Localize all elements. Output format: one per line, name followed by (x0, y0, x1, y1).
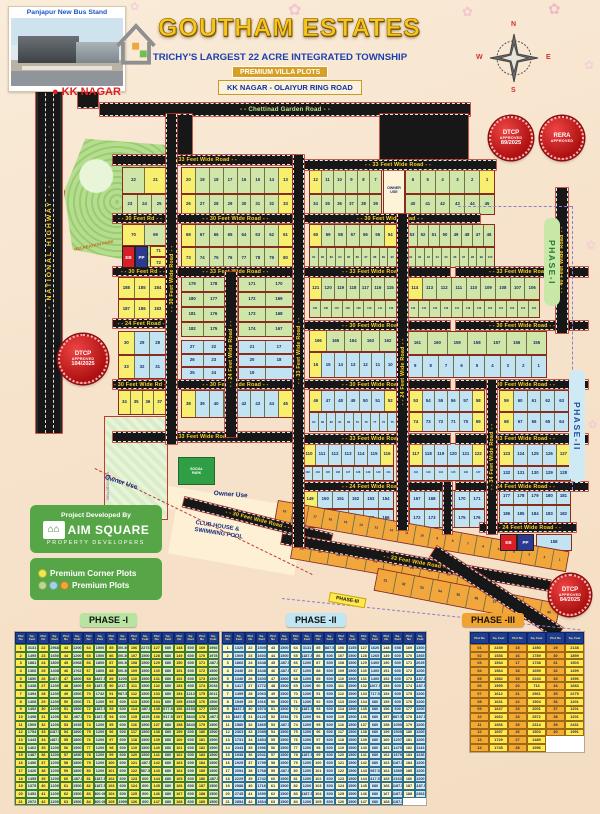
plot-no-cell: 102 (313, 775, 324, 783)
plot-no-cell: 48 (267, 682, 278, 690)
sqft-cell: 1500 (140, 736, 151, 744)
plot-cell: 32 (265, 195, 279, 214)
sqft-cell: 1143 (415, 744, 426, 752)
road: 30 Feet Wide Road (300, 321, 450, 330)
sqft-cell: 1800 (72, 682, 83, 690)
soc-park: SOCIAL PARK (178, 457, 215, 485)
sqft-cell: 600 (185, 736, 196, 744)
plot-no-cell: 18 (222, 775, 233, 783)
sqft-cell: 600 (117, 752, 128, 760)
road: 30 Feet Rd (113, 267, 173, 276)
sqft-cell: 4365 (185, 698, 196, 706)
plot-strip: 181176 (181, 307, 225, 322)
plot-no-cell: 09 (470, 706, 489, 714)
sqft-cell: 1850 (26, 675, 37, 683)
sqft-cell: 1300 (415, 644, 426, 652)
road-label: 30 Feet Rd (121, 269, 165, 275)
sqft-cell: 1200 (94, 736, 105, 744)
seal-text: 84/2025 (560, 597, 580, 603)
plot-cell: 118 (423, 444, 436, 465)
plot-cell: 5 (421, 168, 436, 193)
sqft-cell: 2243 (527, 675, 546, 683)
plot-no-cell: 75 (83, 729, 94, 737)
plot-no-cell: 72 (290, 706, 301, 714)
sqft-cell: 1500 (347, 675, 358, 683)
sqft-cell: 1200 (49, 790, 60, 798)
plot-cell: 30 (119, 332, 135, 354)
plot-cell: 182 (557, 506, 570, 522)
plot-cell: 49 (451, 225, 462, 246)
plot-cell: 45 (279, 391, 292, 417)
sqft-cell: 600 (185, 798, 196, 806)
plot-no-cell: 174 (196, 682, 207, 690)
table-header-sqft: Sq. Feet (94, 632, 105, 644)
plot-cell: 115 (385, 278, 396, 299)
plot-strip: 166165164163162 (309, 330, 397, 352)
plot-no-cell: 46 (60, 667, 71, 675)
sqft-cell: 2025 (415, 659, 426, 667)
sqft-cell: 1648 (256, 667, 267, 675)
plot-no-cell: 183 (403, 752, 414, 760)
plot-cell: 176 (204, 308, 225, 321)
plot-no-cell: 46 (267, 667, 278, 675)
plot-strip: 2018 (238, 354, 293, 367)
plot-cell: 169 (266, 293, 292, 306)
sqft-cell: 1187.5 (415, 675, 426, 683)
plot-cell: 33 (119, 356, 135, 378)
plot-strip: 7374757677787980 (181, 247, 293, 269)
plot-no-cell: 74 (290, 721, 301, 729)
plot-no-cell: 159 (174, 729, 185, 737)
plot-no-cell: 31 (245, 713, 256, 721)
sqft-cell: 1742 (256, 775, 267, 783)
plot-cell: 84 (336, 248, 345, 267)
sqft-cell: 1408 (26, 698, 37, 706)
plot-cell: 34 (119, 391, 131, 414)
plot-no-cell: 26 (508, 729, 527, 737)
sqft-cell: 600 (324, 721, 335, 729)
plot-no-cell: 31 (546, 659, 565, 667)
sqft-cell: 680 (162, 675, 173, 683)
developer-tagline: PROPERTY DEVELOPERS (47, 540, 145, 546)
plot-no-cell: 161 (174, 744, 185, 752)
sqft-cell: 1500 (347, 667, 358, 675)
plot-no-cell: 37 (38, 759, 49, 767)
plot-no-cell: 134 (358, 698, 369, 706)
plot-no-cell: 19 (15, 782, 26, 790)
plot-cell: 17 (266, 341, 292, 353)
plot-cell: 168 (425, 491, 440, 508)
plot-no-cell: 167 (174, 790, 185, 798)
sqft-cell: 1500 (140, 652, 151, 660)
plot-strip: 123124125126127 (499, 443, 571, 466)
sqft-cell: 1487.5 (208, 713, 219, 721)
plot-no-cell: 102 (106, 775, 117, 783)
sqft-cell: 1200 (49, 690, 60, 698)
plot-cell: 32 (135, 356, 151, 378)
plot-strip: 6867666564636261 (181, 224, 293, 247)
sqft-cell: 600 (392, 675, 403, 683)
plot-strip: 2524 (181, 367, 225, 380)
plot-no-cell: 64 (83, 644, 94, 652)
sqft-cell: 1200 (301, 682, 312, 690)
plot-no-cell: 153 (381, 682, 392, 690)
table-header-sqft: Sq. Feet (527, 632, 546, 644)
plot-no-cell: 4 (15, 667, 26, 675)
plot-strip: 187186183 (118, 299, 166, 320)
sqft-cell: 917.5 (162, 713, 173, 721)
plot-no-cell: 187 (403, 782, 414, 790)
sqft-cell: 1500 (279, 690, 290, 698)
sqft-cell: 600 (117, 721, 128, 729)
plot-no-cell: 124 (335, 782, 346, 790)
plot-no-cell: 58 (60, 759, 71, 767)
sqft-cell: 2089 (256, 729, 267, 737)
plot-cell: 171 (239, 278, 266, 291)
plot-no-cell: 142 (358, 759, 369, 767)
plot-no-cell: 63 (60, 798, 71, 806)
plot-cell: 188 (119, 278, 135, 298)
plot-no-cell: 12 (15, 729, 26, 737)
plot-cell: 111 (452, 278, 467, 299)
sqft-cell: 1200 (301, 767, 312, 775)
sqft-cell: 2229 (233, 775, 244, 783)
plot-cell: 35 (322, 195, 334, 214)
sqft-cell: 600 (117, 736, 128, 744)
table-header-plot: Plot No (83, 632, 94, 644)
sqft-cell: 600 (392, 659, 403, 667)
plot-no-cell: 143 (358, 767, 369, 775)
plot-no-cell: 93 (313, 706, 324, 714)
plot-no-cell: 128 (358, 652, 369, 660)
sqft-cell (565, 744, 584, 752)
plot-no-cell: 138 (358, 729, 369, 737)
plot-cell: 92 (416, 248, 425, 267)
plot-cell: 62 (541, 391, 555, 411)
plot-strip: 654321 (405, 167, 495, 194)
sqft-cell: 1762 (72, 667, 83, 675)
sqft-cell: 2968 (49, 644, 60, 652)
plot-cell: 117 (410, 444, 423, 465)
plot-cell: 30 (238, 195, 252, 214)
plot-no-cell: 42 (38, 798, 49, 806)
road (380, 114, 468, 160)
plot-strip: 2019181716151413 (181, 167, 293, 194)
sqft-cell: 1200 (415, 698, 426, 706)
plot-cell: 107 (511, 278, 526, 299)
plot-no-cell: 86 (313, 652, 324, 660)
plot-no-cell: 156 (174, 706, 185, 714)
plot-cell: 13 (347, 353, 359, 377)
plot-no-cell: 55 (60, 736, 71, 744)
plot-no-cell: 154 (381, 690, 392, 698)
road-label: 30 Feet Wide Road (202, 216, 268, 222)
premium-dot-icon (38, 581, 47, 590)
plot-no-cell: 7 (15, 690, 26, 698)
road: 24 Feet Wide Road (397, 214, 408, 530)
sqft-cell: 400.06 (94, 790, 105, 798)
plot-no-cell: 24 (508, 713, 527, 721)
sqft-cell: 1487.5 (49, 736, 60, 744)
plot-cell: 71 (151, 247, 166, 256)
sqft-cell: 600 (185, 675, 196, 683)
plot-no-cell: 152 (381, 675, 392, 683)
road: 30 Feet Wide Road (300, 380, 450, 389)
plot-no-cell: 134 (151, 698, 162, 706)
sqft-cell: 2572 (527, 713, 546, 721)
sqft-cell: 600 (324, 767, 335, 775)
plot-no-cell: 111 (335, 682, 346, 690)
premium-dot-icon (49, 581, 58, 590)
sqft-cell: 600 (117, 767, 128, 775)
sqft-cell: 1500 (279, 752, 290, 760)
plot-cell: 43 (450, 195, 465, 214)
plot-cell: 23 (204, 355, 225, 366)
sqft-cell: 1187.5 (94, 706, 105, 714)
plot-no-cell: 114 (128, 706, 139, 714)
plot-no-cell: 113 (335, 698, 346, 706)
plot-no-cell: 16 (15, 759, 26, 767)
plot-cell: 138 (354, 467, 364, 480)
plot-no-cell: 01 (470, 644, 489, 652)
sqft-cell: 1916 (256, 698, 267, 706)
approval-seal: DTCPAPPROVED84/2025 (549, 574, 591, 616)
road-label: 34 Feet Wide Road (489, 424, 495, 490)
plot-table: Plot NoSq. FeetPlot NoSq. FeetPlot NoSq.… (470, 632, 584, 752)
plot-no-cell: 38 (245, 767, 256, 775)
plot-no-cell: 2 (222, 652, 233, 660)
plot-no-cell: 45 (267, 659, 278, 667)
plot-cell: 79 (354, 413, 363, 431)
sqft-cell: 1200 (301, 667, 312, 675)
plot-cell: 83 (319, 413, 328, 431)
plot-no-cell: 27 (508, 736, 527, 744)
sqft-cell: 600 (117, 775, 128, 783)
road-label: NATIONAL HIGHWAY (46, 184, 53, 317)
sqft-cell: 1200 (415, 775, 426, 783)
sqft-cell: 1500 (94, 652, 105, 660)
sqft-cell: 1859 (565, 652, 584, 660)
sqft-cell: 1996 (565, 675, 584, 683)
plot-cell: 15 (322, 353, 334, 377)
plot-no-cell: 79 (290, 759, 301, 767)
plot-no-cell: 61 (60, 782, 71, 790)
plot-no-cell: 25 (508, 721, 527, 729)
plot-cell: 112 (437, 278, 452, 299)
plot-cell: 139 (364, 467, 374, 480)
plot-cell: 116 (372, 278, 384, 299)
sqft-cell: 600 (185, 744, 196, 752)
sqft-cell: 1187.5 (301, 752, 312, 760)
sqft-cell: 717.5 (369, 690, 380, 698)
plot-cell: 139 (354, 301, 365, 317)
sqft-cell: 1500 (72, 744, 83, 752)
plot-strip: 71 (150, 246, 167, 257)
plot-cell: 90 (388, 248, 396, 267)
plot-no-cell: 41 (38, 790, 49, 798)
sqft-cell: 680 (369, 736, 380, 744)
sqft-cell: 600 (324, 659, 335, 667)
plot-cell: 17 (224, 168, 238, 193)
plot-no-cell: 44 (60, 652, 71, 660)
plot-strip: 19 (238, 367, 293, 380)
plot-no-cell: 185 (403, 767, 414, 775)
sqft-cell: 1938 (233, 752, 244, 760)
sqft-cell: 600 (324, 698, 335, 706)
sqft-cell: 1500 (140, 682, 151, 690)
phase-table-pill: PHASE -III (462, 613, 524, 627)
table-header-sqft: Sq. Feet (256, 632, 267, 644)
plot-no-cell: 36 (38, 752, 49, 760)
sqft-cell: 1187.5 (49, 729, 60, 737)
sqft-cell: 600 (324, 736, 335, 744)
sqft-cell: 600 (117, 759, 128, 767)
sqft-cell: 680 (162, 752, 173, 760)
plot-no-cell: 131 (151, 675, 162, 683)
plot-no-cell: 173 (196, 675, 207, 683)
plot-cell: 163 (362, 331, 379, 351)
plot-no-cell: 19 (508, 675, 527, 683)
sqft-cell: 1200 (94, 759, 105, 767)
plot-no-cell: 175 (403, 690, 414, 698)
sqft-cell: 1500 (347, 729, 358, 737)
sqft-cell: 1800 (49, 659, 60, 667)
plot-cell: 67 (514, 413, 528, 431)
sqft-cell: 1500 (208, 667, 219, 675)
sqft-cell: 680 (369, 782, 380, 790)
sqft-cell: 1200 (94, 767, 105, 775)
sqft-cell: 600 (324, 652, 335, 660)
plot-cell: 91 (407, 248, 416, 267)
plot-cell: 99 (477, 248, 486, 267)
plot-cell: 80 (279, 248, 292, 268)
plot-no-cell: 183 (196, 752, 207, 760)
plot-no-cell: 106 (128, 644, 139, 652)
plot-no-cell: 27 (245, 682, 256, 690)
plot-cell: 3 (501, 356, 516, 377)
sqft-cell: 1825 (140, 713, 151, 721)
sqft-cell: 1580 (233, 721, 244, 729)
sqft-cell: 1487.5 (140, 759, 151, 767)
sqft-cell: 680 (162, 775, 173, 783)
phase-table-pill: PHASE -I (80, 613, 137, 627)
sqft-cell: 600 (324, 713, 335, 721)
plot-no-cell: 122 (335, 767, 346, 775)
plot-cell: 110 (303, 444, 316, 465)
sqft-cell: 680 (162, 798, 173, 806)
plot-cell: 70 (123, 225, 145, 245)
plot-no-cell: 33 (38, 729, 49, 737)
plot-no-cell: 110 (128, 675, 139, 683)
plot-cell: 137 (343, 467, 353, 480)
road: 30 Feet Rd (113, 214, 167, 223)
plot-no-cell: 120 (335, 752, 346, 760)
sqft-cell: 680 (162, 698, 173, 706)
phase-side-pill: PHASE-I (544, 218, 560, 306)
sqft-cell: 1500 (347, 713, 358, 721)
plot-cell: 129 (543, 467, 557, 480)
plot-cell: 164 (345, 331, 362, 351)
road: 33 Feet Wide Road (293, 155, 304, 547)
plot-cell: 125 (528, 444, 542, 465)
plot-no-cell: 174 (403, 682, 414, 690)
plot-no-cell: 37 (245, 759, 256, 767)
plot-no-cell: 77 (290, 744, 301, 752)
sqft-cell: 1500 (347, 798, 358, 806)
sqft-cell: 1679 (392, 752, 403, 760)
plot-cell: 146 (441, 301, 452, 317)
plot-no-cell: 143 (151, 767, 162, 775)
plot-no-cell: 29 (38, 698, 49, 706)
plot-no-cell: 6 (15, 682, 26, 690)
plot-no-cell: 39 (546, 721, 565, 729)
plot-no-cell: 119 (335, 744, 346, 752)
plot-no-cell: 127 (151, 644, 162, 652)
plot-cell: 25 (152, 195, 166, 214)
plot-no-cell: 158 (381, 721, 392, 729)
sqft-cell: 600 (117, 698, 128, 706)
plot-no-cell: 132 (151, 682, 162, 690)
sqft-cell: 1500 (208, 698, 219, 706)
sqft-cell: 1492 (26, 706, 37, 714)
table-header-sqft: Sq. Feet (415, 632, 426, 644)
sqft-cell: 1155 (347, 644, 358, 652)
sqft-cell: 1200 (117, 675, 128, 683)
plot-cell: 168 (266, 308, 292, 321)
plot-cell: 159 (448, 332, 468, 354)
plot-cell: 170 (455, 491, 470, 508)
table-header-plot: Plot No (313, 632, 324, 644)
plot-cell: 160 (428, 332, 448, 354)
sqft-cell: 1582 (489, 675, 508, 683)
plot-no-cell: 62 (60, 790, 71, 798)
plot-no-cell: 54 (267, 729, 278, 737)
sqft-cell: 600 (185, 682, 196, 690)
plot-cell: 48 (462, 225, 473, 246)
sqft-cell: 1745 (489, 744, 508, 752)
sqft-cell: 1536 (489, 652, 508, 660)
table-header-plot: Plot No (546, 632, 565, 644)
plot-no-cell: 133 (358, 690, 369, 698)
plot-cell: 36 (143, 391, 155, 414)
sqft-cell: 600.36 (117, 644, 128, 652)
plot-no-cell: 55 (267, 736, 278, 744)
table-header-plot: Plot No (508, 632, 527, 644)
road-label: 24 Feet Wide Road (495, 525, 561, 531)
sqft-cell: 600 (392, 667, 403, 675)
plot-no-cell: 70 (290, 690, 301, 698)
plot-no-cell: 168 (381, 798, 392, 806)
sqft-cell: 1200 (49, 775, 60, 783)
plot-no-cell: 137 (151, 721, 162, 729)
plot-no-cell: 140 (358, 744, 369, 752)
plot-no-cell: 132 (358, 682, 369, 690)
plot-cell: 116 (381, 444, 393, 465)
plot-no-cell: 51 (60, 706, 71, 714)
sqft-cell: 1866 (233, 659, 244, 667)
compass-north: N (511, 21, 516, 28)
sqft-cell: 1500 (279, 682, 290, 690)
plot-cell: 81 (336, 413, 345, 431)
plot-no-cell: 145 (151, 782, 162, 790)
plot-cell: 135 (323, 467, 333, 480)
plot-no-cell: 100 (313, 759, 324, 767)
plot-cell: 6 (454, 356, 469, 377)
plot-no-cell: 100 (106, 759, 117, 767)
sqft-cell: 1650 (49, 652, 60, 660)
plot-no-cell: 145 (358, 782, 369, 790)
sqft-cell: 1500 (347, 682, 358, 690)
